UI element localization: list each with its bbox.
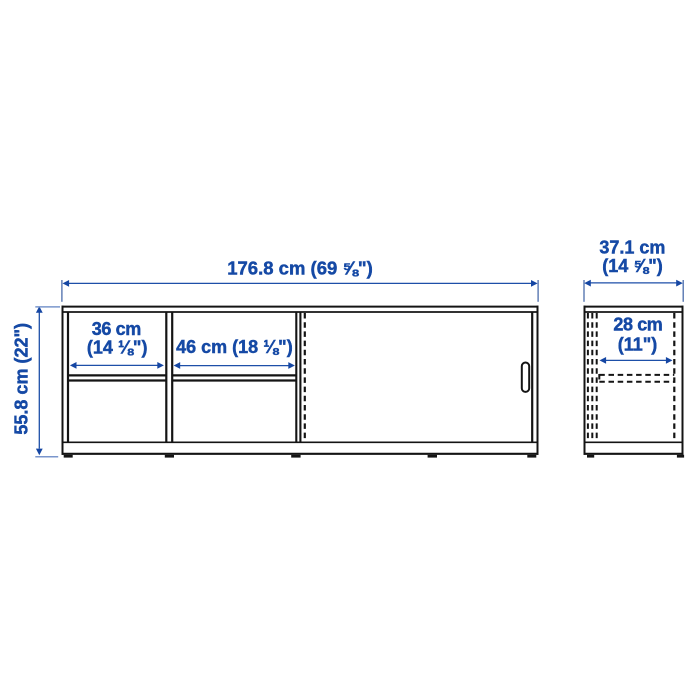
svg-text:(14 ⅝"): (14 ⅝") <box>602 256 663 276</box>
svg-text:(11"): (11") <box>618 335 658 355</box>
svg-text:36 cm: 36 cm <box>92 319 141 339</box>
svg-text:176.8 cm (69 ⅝"): 176.8 cm (69 ⅝") <box>227 257 373 278</box>
svg-text:37.1 cm: 37.1 cm <box>599 237 665 257</box>
svg-text:(14 ⅛"): (14 ⅛") <box>87 338 148 358</box>
svg-text:28 cm: 28 cm <box>613 315 662 335</box>
svg-text:55.8 cm (22"): 55.8 cm (22") <box>11 323 31 435</box>
svg-text:46 cm (18 ⅛"): 46 cm (18 ⅛") <box>176 337 293 357</box>
